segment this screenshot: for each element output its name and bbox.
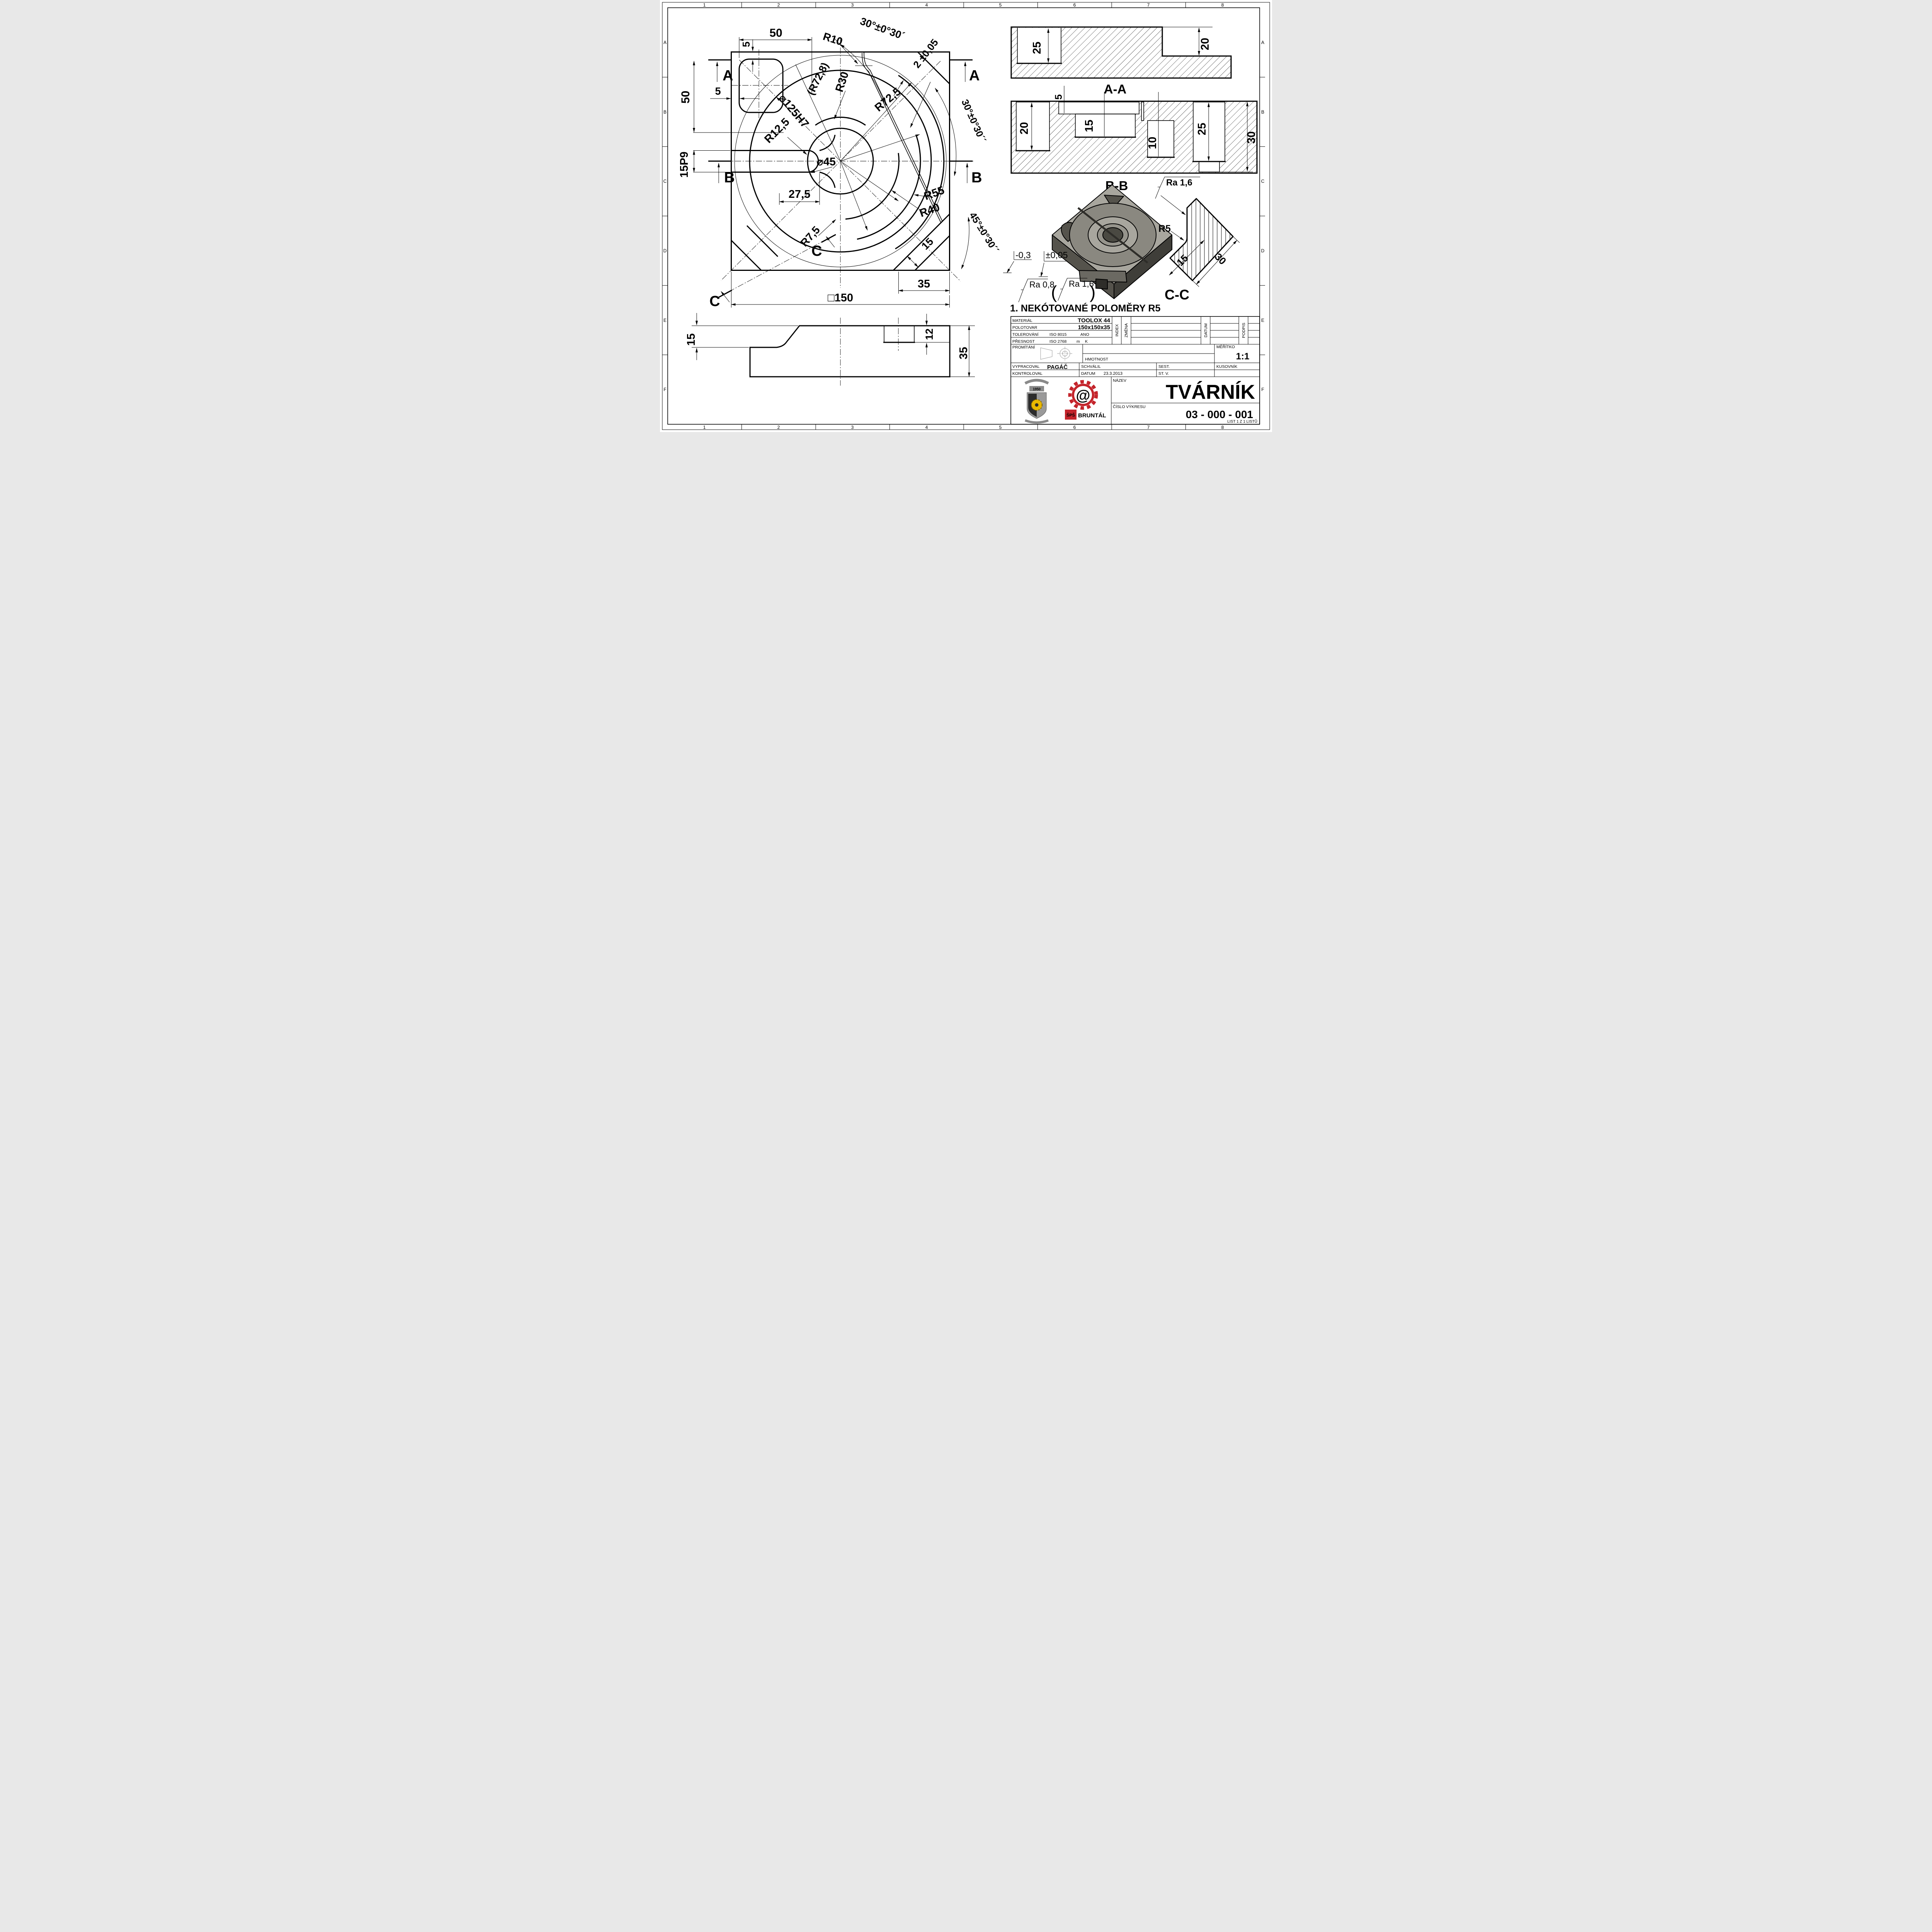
label-section-CC: C-C <box>1165 287 1189 303</box>
presnost-m: m <box>1077 339 1080 344</box>
dim-25-bb: 25 <box>1196 123 1208 135</box>
meritko-label: MĚŘÍTKO <box>1216 344 1235 349</box>
dim-10-bb: 10 <box>1146 137 1159 149</box>
stv-label: ST. V. <box>1158 371 1169 376</box>
svg-text:2: 2 <box>777 425 780 430</box>
dim-12-front: 12 <box>923 328 935 340</box>
cislo-label: ČÍSLO VÝKRESU <box>1113 404 1146 409</box>
section-label-A-left: A <box>723 68 733 84</box>
svg-text:E: E <box>663 318 667 323</box>
svg-text:B: B <box>1261 109 1264 115</box>
presnost-k: K <box>1085 339 1088 344</box>
svg-text:5: 5 <box>999 425 1002 430</box>
datum-col-label: DATUM <box>1204 323 1208 338</box>
section-label-B-left: B <box>724 170 735 186</box>
dim-35: 35 <box>918 278 930 290</box>
svg-text:1: 1 <box>703 425 706 430</box>
svg-text:E: E <box>1261 318 1264 323</box>
svg-text:6: 6 <box>1073 425 1076 430</box>
svg-text:3: 3 <box>851 425 854 430</box>
vypracoval-value: PAGÁČ <box>1047 364 1068 371</box>
sest-label: SEST. <box>1158 364 1170 369</box>
dim-20-bb: 20 <box>1018 122 1031 134</box>
svg-text:6: 6 <box>1073 2 1076 8</box>
tolerance-pm005: ±0,05 <box>1046 250 1068 260</box>
svg-text:D: D <box>1261 248 1265 253</box>
section-label-C-mid: C <box>811 243 822 259</box>
svg-text:8: 8 <box>1221 2 1224 8</box>
tolerovani-std: ISO 8015 <box>1049 332 1067 337</box>
material-label: MATERIÁL <box>1012 318 1032 323</box>
svg-text:2: 2 <box>777 2 780 8</box>
presnost-label: PŘESNOST <box>1012 339 1035 344</box>
svg-text:4: 4 <box>925 2 928 8</box>
meritko-value: 1:1 <box>1236 351 1250 362</box>
polotovar-label: POLOTOVAR <box>1012 325 1037 330</box>
dim-5-top: 5 <box>740 42 752 47</box>
tolerovani-val: ANO <box>1080 332 1089 337</box>
svg-text:F: F <box>1261 387 1264 392</box>
svg-text:C: C <box>1261 179 1265 184</box>
ra-1-6-cc-label: Ra 1,6 <box>1166 177 1192 187</box>
cislo-value: 03 - 000 - 001 <box>1186 408 1253 420</box>
dim-15p9: 15P9 <box>678 151 690 178</box>
svg-text:C: C <box>663 179 667 184</box>
svg-text:D: D <box>663 248 667 253</box>
drawing-note: 1. NEKÓTOVANÉ POLOMĚRY R5 <box>1010 302 1161 314</box>
svg-text:8: 8 <box>1221 425 1224 430</box>
crest-year: 1950 <box>1033 387 1041 391</box>
dim-30-bb: 30 <box>1245 131 1258 144</box>
dim-15-front: 15 <box>685 333 697 346</box>
logo-bruntal-text: BRUNTÁL <box>1078 412 1106 419</box>
dim-dia45: ⌀45 <box>816 156 836 168</box>
schvalil-label: SCHVÁLIL <box>1081 364 1101 369</box>
datum-value: 23.3.2013 <box>1104 371 1122 376</box>
dim-r5-cc: R5 <box>1158 223 1171 234</box>
dim-150: □150 <box>828 292 853 304</box>
nazev-value: TVÁRNÍK <box>1166 381 1255 403</box>
svg-text:A: A <box>1261 40 1264 45</box>
index-col-label: INDEX <box>1115 324 1119 337</box>
section-label-A-right: A <box>969 68 980 84</box>
dim-20-aa: 20 <box>1199 38 1211 50</box>
promitani-label: PROMÍTÁNÍ <box>1012 345 1035 350</box>
tolerance-minus03: -0,3 <box>1015 250 1031 260</box>
presnost-std: ISO 2768 <box>1049 339 1067 344</box>
dim-50-left: 50 <box>679 91 692 104</box>
kontroloval-label: KONTROLOVAL <box>1012 371 1043 376</box>
svg-text:7: 7 <box>1147 2 1150 8</box>
section-label-B-right: B <box>971 170 982 186</box>
zmena-col-label: ZMĚNA <box>1124 323 1129 338</box>
vypracoval-label: VYPRACOVAL <box>1012 364 1040 369</box>
nazev-label: NÁZEV <box>1113 378 1126 383</box>
dim-5-left: 5 <box>715 85 721 97</box>
svg-text:3: 3 <box>851 2 854 8</box>
section-label-C-bottom: C <box>709 293 720 310</box>
svg-text:F: F <box>663 387 666 392</box>
paren-close: ) <box>1090 282 1095 302</box>
svg-text:A: A <box>663 40 667 45</box>
kusovnik-label: KUSOVNÍK <box>1216 364 1237 369</box>
svg-text:4: 4 <box>925 425 928 430</box>
logo-sps-text: ŠPŠ <box>1066 413 1075 418</box>
iso-front-notch <box>1096 279 1107 289</box>
svg-text:1: 1 <box>703 2 706 8</box>
svg-text:7: 7 <box>1147 425 1150 430</box>
material-value: TOOLOX 44 <box>1078 317 1111 324</box>
logo-at-sign: @ <box>1076 388 1090 404</box>
dim-50-top: 50 <box>769 27 782 39</box>
drawing-sheet: 12345678 12345678 ABCDEF ABCDEF <box>660 0 1272 432</box>
list-value: LIST 1 Z 1 LISTŮ <box>1227 419 1257 424</box>
polotovar-value: 150x150x35 <box>1078 324 1110 331</box>
svg-text:B: B <box>663 109 667 115</box>
tolerovani-label: TOLEROVÁNÍ <box>1012 332 1039 337</box>
dim-27-5: 27,5 <box>789 188 810 201</box>
label-section-AA: A-A <box>1104 82 1127 96</box>
hmotnost-label: HMOTNOST <box>1085 357 1109 362</box>
paren-open: ( <box>1051 282 1057 302</box>
dim-35-front: 35 <box>957 347 970 359</box>
dim-5-bb: 5 <box>1053 94 1064 100</box>
datum-label: DATUM <box>1081 371 1095 376</box>
podpis-col-label: PODPIS <box>1242 323 1246 338</box>
dim-15-bb: 15 <box>1083 120 1095 132</box>
svg-text:5: 5 <box>999 2 1002 8</box>
dim-25-aa: 25 <box>1031 42 1043 54</box>
